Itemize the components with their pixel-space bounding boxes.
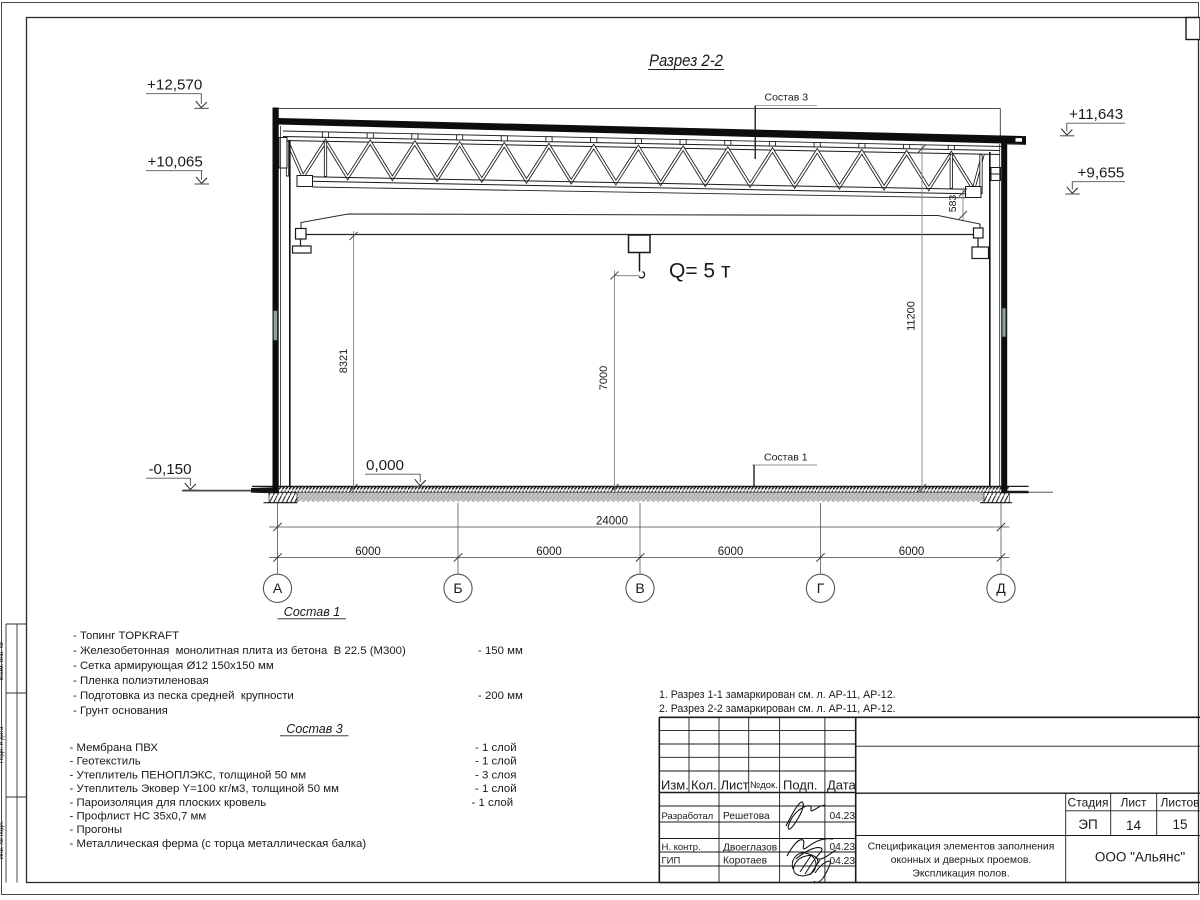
svg-text:- 3 слоя: - 3 слоя [475, 769, 516, 781]
svg-text:Спецификация элементов заполне: Спецификация элементов заполнения [868, 841, 1055, 853]
svg-text:15: 15 [1172, 817, 1187, 832]
svg-text:- 1 слой: - 1 слой [475, 742, 517, 754]
svg-text:Кол.: Кол. [691, 778, 717, 793]
svg-text:6000: 6000 [536, 546, 562, 558]
svg-text:Б: Б [453, 580, 462, 596]
svg-text:Двоеглазов: Двоеглазов [723, 843, 777, 854]
svg-text:ООО "Альянс": ООО "Альянс" [1095, 850, 1185, 865]
svg-text:6000: 6000 [899, 546, 925, 558]
svg-text:- 1 слой: - 1 слой [472, 797, 514, 809]
svg-text:№док.: №док. [750, 780, 778, 791]
svg-text:оконных и дверных проемов.: оконных и дверных проемов. [891, 855, 1032, 866]
svg-text:Состав 1: Состав 1 [764, 451, 808, 463]
svg-text:Изм.: Изм. [661, 778, 689, 793]
svg-text:Состав 3: Состав 3 [286, 722, 342, 736]
svg-text:Г: Г [817, 580, 825, 596]
svg-text:Н. контр.: Н. контр. [662, 842, 701, 853]
svg-text:- Пленка полиэтиленовая: - Пленка полиэтиленовая [73, 675, 209, 687]
svg-text:Дата: Дата [827, 778, 857, 793]
svg-text:1. Разрез 1-1 замаркирован см.: 1. Разрез 1-1 замаркирован см. л. АР-11,… [659, 689, 896, 701]
svg-text:- Железобетонная монолитная п: - Железобетонная монолитная плита из бет… [73, 645, 406, 657]
svg-text:- Сетка армирующая Ø12 150х150: - Сетка армирующая Ø12 150х150 мм [73, 660, 274, 672]
svg-text:6000: 6000 [718, 546, 744, 558]
svg-text:+10,065: +10,065 [148, 154, 203, 171]
svg-text:- 1 слой: - 1 слой [475, 783, 517, 795]
svg-text:- Утеплитель Эковер Y=100 кг/м: - Утеплитель Эковер Y=100 кг/м3, толщино… [70, 783, 340, 795]
svg-text:ГИП: ГИП [662, 856, 681, 867]
svg-text:8321: 8321 [338, 349, 350, 373]
svg-text:В: В [635, 580, 644, 596]
svg-text:Решетова: Решетова [723, 811, 770, 822]
svg-text:- Грунт основания: - Грунт основания [73, 705, 168, 717]
svg-text:6000: 6000 [355, 546, 381, 558]
svg-text:- 150 мм: - 150 мм [478, 645, 523, 657]
svg-text:Лист: Лист [1120, 796, 1147, 810]
svg-text:- Прогоны: - Прогоны [70, 824, 123, 836]
svg-text:+9,655: +9,655 [1078, 165, 1125, 182]
svg-text:2. Разрез 2-2 замаркирован см.: 2. Разрез 2-2 замаркирован см. л. АР-11,… [659, 703, 896, 715]
svg-text:- Пароизоляция для плоских кро: - Пароизоляция для плоских кровель [70, 797, 267, 809]
svg-text:- Геотекстиль: - Геотекстиль [70, 756, 141, 768]
svg-text:04.23: 04.23 [830, 811, 856, 822]
svg-text:7000: 7000 [598, 366, 610, 390]
svg-text:- Мембрана ПВХ: - Мембрана ПВХ [70, 742, 159, 754]
svg-text:04.23: 04.23 [830, 856, 856, 867]
svg-text:24000: 24000 [596, 516, 628, 528]
svg-text:+12,570: +12,570 [147, 77, 202, 94]
svg-text:- 200 мм: - 200 мм [478, 690, 523, 702]
svg-text:- Подготовка из песка средней: - Подготовка из песка средней крупности [73, 690, 294, 702]
svg-text:- Утеплитель ПЕНОПЛЭКС, толщин: - Утеплитель ПЕНОПЛЭКС, толщиной 50 мм [70, 769, 307, 781]
svg-text:Разработал: Разработал [662, 811, 714, 822]
svg-text:583: 583 [947, 195, 959, 213]
svg-text:- Топинг TOPKRAFT: - Топинг TOPKRAFT [73, 630, 179, 642]
svg-text:Листов: Листов [1161, 796, 1200, 810]
svg-text:А: А [273, 580, 283, 596]
svg-text:ЭП: ЭП [1078, 817, 1097, 832]
svg-text:Подп. и дата: Подп. и дата [0, 726, 5, 763]
svg-text:Лист: Лист [721, 778, 749, 793]
svg-text:+11,643: +11,643 [1069, 106, 1123, 123]
svg-text:Состав 3: Состав 3 [765, 92, 809, 104]
svg-text:-0,150: -0,150 [149, 461, 192, 478]
svg-text:Инв. № подл.: Инв. № подл. [0, 820, 5, 859]
svg-text:11200: 11200 [906, 301, 918, 331]
svg-text:Q= 5 т: Q= 5 т [669, 260, 731, 283]
svg-text:- 1 слой: - 1 слой [475, 756, 517, 768]
svg-text:Подп.: Подп. [783, 778, 818, 793]
svg-text:- Металлическая ферма (с торца: - Металлическая ферма (с торца металличе… [70, 838, 367, 850]
svg-text:Экспликация полов.: Экспликация полов. [912, 869, 1009, 880]
svg-text:- Профлист НС 35х0,7 мм: - Профлист НС 35х0,7 мм [70, 811, 207, 823]
svg-text:0,000: 0,000 [366, 457, 404, 474]
svg-text:Состав 1: Состав 1 [284, 605, 340, 619]
svg-text:Разрез 2-2: Разрез 2-2 [649, 51, 723, 70]
svg-text:Взам. инв. №: Взам. инв. № [0, 641, 5, 680]
svg-text:14: 14 [1126, 818, 1142, 833]
svg-text:Стадия: Стадия [1068, 796, 1109, 810]
svg-text:Коротаев: Коротаев [723, 856, 767, 867]
svg-text:Д: Д [996, 580, 1006, 596]
